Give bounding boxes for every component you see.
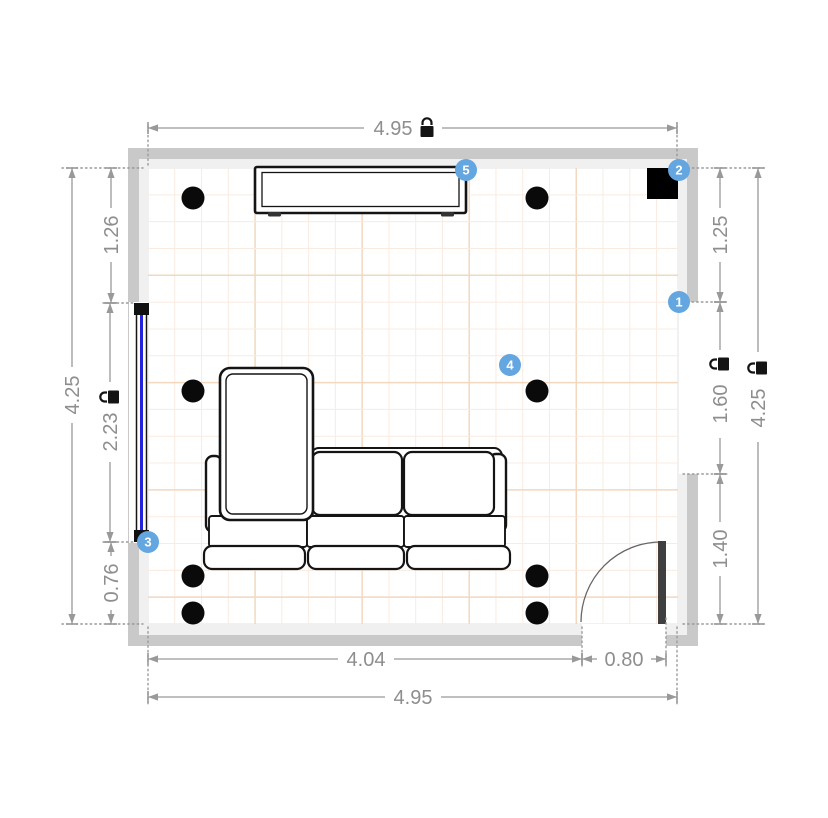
dot-marker[interactable] [182,380,205,403]
dot-marker[interactable] [526,380,549,403]
dim-right-opening[interactable]: 1.60 [710,385,732,424]
sofa-seat-middle [307,516,404,547]
tv-foot-left [268,212,281,217]
badge-4[interactable]: 4 [499,354,521,376]
sofa-front-cushion-3 [407,546,510,569]
lock-icon[interactable] [746,358,768,378]
dot-marker[interactable] [526,565,549,588]
svg-text:5: 5 [462,163,469,178]
lock-icon[interactable] [708,354,730,374]
door-opening-gap [582,624,666,646]
sofa-front-cushion-1 [204,546,305,569]
sofa-front-cushion-2 [308,546,404,569]
window-cap-top [134,303,149,315]
lock-icon[interactable] [98,387,120,407]
dim-right-lower[interactable]: 1.40 [710,530,732,569]
dim-left-lower[interactable]: 0.76 [101,564,123,603]
tv-foot-right [441,212,454,217]
dot-marker[interactable] [526,602,549,625]
dim-right-upper[interactable]: 1.25 [710,216,732,255]
dim-left-window[interactable]: 2.23 [100,413,122,452]
svg-text:2: 2 [675,163,682,178]
dot-marker[interactable] [182,187,205,210]
svg-text:3: 3 [144,535,151,550]
tv-sideboard[interactable] [255,167,466,217]
dim-top-width[interactable]: 4.95 [374,118,413,140]
dot-marker[interactable] [526,187,549,210]
svg-text:4: 4 [506,358,514,373]
badge-1[interactable]: 1 [668,291,690,313]
dim-bottom-left-span[interactable]: 4.04 [347,649,386,671]
lock-icon[interactable] [417,116,437,138]
dim-right-height[interactable]: 4.25 [748,389,770,428]
floorplan-canvas: 4.95 1.26 2.23 0.76 4.25 1.25 1.60 1.40 [0,0,828,818]
dim-bottom-width[interactable]: 4.95 [394,687,433,709]
window[interactable] [129,302,149,543]
dim-left-upper[interactable]: 1.26 [101,216,123,255]
badge-2[interactable]: 2 [668,159,690,181]
wall-right-lower-outer [687,474,698,646]
dim-left-height[interactable]: 4.25 [62,376,84,415]
dot-marker[interactable] [182,602,205,625]
sofa-back-cushion-2 [404,452,494,515]
sofa-back-cushion-1 [312,452,402,515]
dot-marker[interactable] [182,565,205,588]
badge-3[interactable]: 3 [137,531,159,553]
wall-top-outer [128,148,698,159]
badge-5[interactable]: 5 [455,159,477,181]
sofa-seat-right [404,516,505,547]
svg-text:1: 1 [675,295,682,310]
dim-bottom-door[interactable]: 0.80 [605,649,644,671]
door-leaf[interactable] [658,541,666,624]
